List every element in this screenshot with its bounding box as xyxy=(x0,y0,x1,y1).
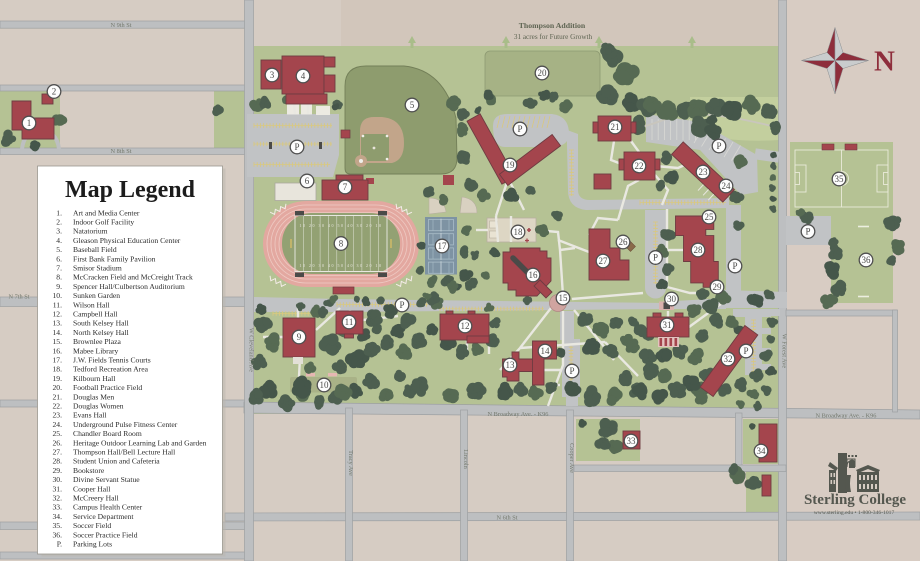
svg-text:12: 12 xyxy=(461,321,470,331)
svg-text:Baseball Field: Baseball Field xyxy=(73,245,117,254)
svg-text:Kilbourn Hall: Kilbourn Hall xyxy=(73,374,115,383)
svg-text:20.: 20. xyxy=(53,383,63,392)
svg-text:McCreery Hall: McCreery Hall xyxy=(73,494,119,503)
svg-text:10.: 10. xyxy=(53,291,63,300)
svg-text:34: 34 xyxy=(757,446,767,456)
svg-text:22: 22 xyxy=(635,161,644,171)
svg-text:Campus Health Center: Campus Health Center xyxy=(73,503,143,512)
svg-text:24: 24 xyxy=(722,181,732,191)
svg-text:Cooper Ave: Cooper Ave xyxy=(568,443,575,473)
svg-text:8: 8 xyxy=(339,239,344,249)
svg-text:10 20 30 40 50 40 30 20 10: 10 20 30 40 50 40 30 20 10 xyxy=(300,223,383,228)
svg-text:P: P xyxy=(399,300,404,310)
svg-text:N 6th St: N 6th St xyxy=(497,515,518,522)
svg-text:27: 27 xyxy=(599,256,609,266)
svg-text:Underground Pulse Fitness Cent: Underground Pulse Fitness Center xyxy=(73,420,178,429)
svg-text:P: P xyxy=(743,346,748,356)
svg-text:31 acres for Future Growth: 31 acres for Future Growth xyxy=(514,33,593,41)
svg-text:Art and Media Center: Art and Media Center xyxy=(73,208,140,217)
svg-text:34.: 34. xyxy=(53,512,63,521)
svg-text:9.: 9. xyxy=(56,282,62,291)
svg-text:www.sterling.edu • 1-800-346: www.sterling.edu • 1-800-346-1017 xyxy=(814,510,895,516)
svg-text:N Broadway Ave. - K96: N Broadway Ave. - K96 xyxy=(488,411,549,418)
svg-text:28: 28 xyxy=(694,245,704,255)
svg-text:North Kelsey Hall: North Kelsey Hall xyxy=(73,328,129,337)
svg-text:10 20 30 40 50 40 30 20 10: 10 20 30 40 50 40 30 20 10 xyxy=(300,263,383,268)
svg-text:30: 30 xyxy=(667,294,677,304)
svg-text:Sunken Garden: Sunken Garden xyxy=(73,291,120,300)
svg-text:33.: 33. xyxy=(53,503,63,512)
svg-text:Bookstore: Bookstore xyxy=(73,466,105,475)
svg-text:P: P xyxy=(805,227,810,237)
svg-text:12.: 12. xyxy=(53,310,63,319)
svg-text:P: P xyxy=(732,261,737,271)
svg-text:14: 14 xyxy=(541,346,551,356)
svg-text:Tedford Recreation Area: Tedford Recreation Area xyxy=(73,365,149,374)
svg-text:1.: 1. xyxy=(56,208,62,217)
svg-text:17.: 17. xyxy=(53,356,63,365)
svg-text:8.: 8. xyxy=(56,273,62,282)
svg-text:26.: 26. xyxy=(53,438,63,447)
svg-text:13.: 13. xyxy=(53,319,63,328)
svg-text:15: 15 xyxy=(559,293,569,303)
svg-text:Parking Lots: Parking Lots xyxy=(73,540,112,549)
svg-text:W Forest Ave: W Forest Ave xyxy=(781,334,788,369)
svg-text:Douglas Men: Douglas Men xyxy=(73,392,114,401)
svg-text:2.: 2. xyxy=(56,218,62,227)
svg-text:19.: 19. xyxy=(53,374,63,383)
svg-text:Soccer Practice Field: Soccer Practice Field xyxy=(73,530,138,539)
svg-text:P: P xyxy=(294,142,299,152)
svg-text:22.: 22. xyxy=(53,402,63,411)
svg-text:Campbell Hall: Campbell Hall xyxy=(73,310,118,319)
svg-text:11.: 11. xyxy=(53,300,62,309)
svg-text:3: 3 xyxy=(270,70,275,80)
svg-text:Gleason Physical Education Cen: Gleason Physical Education Center xyxy=(73,236,181,245)
svg-text:15.: 15. xyxy=(53,337,63,346)
svg-text:18: 18 xyxy=(514,227,524,237)
svg-text:10: 10 xyxy=(320,380,330,390)
svg-text:J.W. Fields Tennis Courts: J.W. Fields Tennis Courts xyxy=(73,356,151,365)
svg-text:14.: 14. xyxy=(53,328,63,337)
svg-text:7.: 7. xyxy=(56,264,62,273)
svg-text:Divine Servant Statue: Divine Servant Statue xyxy=(73,475,140,484)
svg-text:P: P xyxy=(517,124,522,134)
svg-text:N Broadway Ave. - K96: N Broadway Ave. - K96 xyxy=(816,413,877,420)
svg-text:11: 11 xyxy=(345,317,354,327)
svg-text:Cooper Hall: Cooper Hall xyxy=(73,484,110,493)
svg-text:Lincoln: Lincoln xyxy=(462,449,469,469)
svg-text:Smisor Stadium: Smisor Stadium xyxy=(73,264,122,273)
svg-text:N 9th St: N 9th St xyxy=(111,22,132,29)
svg-text:Student Union and Cafeteria: Student Union and Cafeteria xyxy=(73,457,160,466)
svg-text:4.: 4. xyxy=(56,236,62,245)
svg-text:Soccer Field: Soccer Field xyxy=(73,521,111,530)
svg-text:Sterling College: Sterling College xyxy=(804,492,906,508)
svg-text:P: P xyxy=(716,141,721,151)
svg-text:2: 2 xyxy=(52,87,57,97)
svg-text:35.: 35. xyxy=(53,521,63,530)
svg-text:1: 1 xyxy=(27,118,32,128)
svg-text:31: 31 xyxy=(663,320,672,330)
svg-text:13: 13 xyxy=(506,360,516,370)
svg-text:23: 23 xyxy=(699,167,709,177)
svg-text:Spencer Hall/Culbertson Audito: Spencer Hall/Culbertson Auditorium xyxy=(73,282,185,291)
svg-text:6.: 6. xyxy=(56,254,62,263)
svg-text:Tracy Ave: Tracy Ave xyxy=(347,450,354,476)
svg-text:P.: P. xyxy=(57,540,62,549)
svg-text:Chandler Board Room: Chandler Board Room xyxy=(73,429,142,438)
svg-text:32: 32 xyxy=(724,354,733,364)
svg-text:Evans Hall: Evans Hall xyxy=(73,411,107,420)
svg-text:19: 19 xyxy=(506,160,516,170)
svg-text:South Kelsey Hall: South Kelsey Hall xyxy=(73,319,129,328)
svg-text:36.: 36. xyxy=(53,530,63,539)
svg-text:17: 17 xyxy=(438,241,448,251)
svg-text:29: 29 xyxy=(713,282,723,292)
svg-text:36: 36 xyxy=(862,255,872,265)
svg-text:25: 25 xyxy=(705,212,715,222)
svg-text:25.: 25. xyxy=(53,429,63,438)
svg-text:29.: 29. xyxy=(53,466,63,475)
svg-text:23.: 23. xyxy=(53,411,63,420)
svg-text:26: 26 xyxy=(619,237,629,247)
svg-text:4: 4 xyxy=(301,71,306,81)
svg-text:N 8th St: N 8th St xyxy=(111,148,132,155)
svg-text:Douglas Women: Douglas Women xyxy=(73,402,124,411)
svg-text:Map Legend: Map Legend xyxy=(65,177,196,203)
svg-text:Thompson Hall/Bell Lecture Hal: Thompson Hall/Bell Lecture Hall xyxy=(73,448,175,457)
svg-text:31.: 31. xyxy=(53,484,63,493)
svg-text:18.: 18. xyxy=(53,365,63,374)
svg-text:3.: 3. xyxy=(56,227,62,236)
svg-text:21: 21 xyxy=(611,122,620,132)
svg-text:7: 7 xyxy=(343,182,348,192)
svg-text:W Cleveland Ave: W Cleveland Ave xyxy=(248,328,255,372)
svg-text:9: 9 xyxy=(297,332,302,342)
svg-text:Mabee Library: Mabee Library xyxy=(73,346,119,355)
svg-text:McCracken Field and McCreight: McCracken Field and McCreight Track xyxy=(73,273,193,282)
svg-text:6: 6 xyxy=(305,176,310,186)
svg-text:N 7th St: N 7th St xyxy=(9,294,30,301)
svg-text:21.: 21. xyxy=(53,392,63,401)
svg-text:27.: 27. xyxy=(53,448,63,457)
svg-text:Indoor Golf Facility: Indoor Golf Facility xyxy=(73,218,134,227)
svg-text:P: P xyxy=(569,366,574,376)
svg-text:33: 33 xyxy=(627,436,637,446)
svg-text:Football Practice Field: Football Practice Field xyxy=(73,383,142,392)
svg-text:Thompson Addition: Thompson Addition xyxy=(519,21,586,30)
svg-text:30.: 30. xyxy=(53,475,63,484)
svg-text:Heritage Outdoor Learning Lab: Heritage Outdoor Learning Lab and Garden xyxy=(73,438,207,447)
svg-text:5.: 5. xyxy=(56,245,62,254)
svg-text:20: 20 xyxy=(538,68,548,78)
svg-text:24.: 24. xyxy=(53,420,63,429)
svg-text:16.: 16. xyxy=(53,346,63,355)
svg-text:35: 35 xyxy=(835,174,845,184)
svg-text:Wilson Hall: Wilson Hall xyxy=(73,300,110,309)
svg-text:5: 5 xyxy=(410,100,415,110)
svg-text:32.: 32. xyxy=(53,494,63,503)
svg-text:P: P xyxy=(653,253,658,263)
svg-text:16: 16 xyxy=(529,270,539,280)
svg-text:Brownlee Plaza: Brownlee Plaza xyxy=(73,337,121,346)
svg-text:First Bank Family Pavilion: First Bank Family Pavilion xyxy=(73,254,156,263)
svg-text:Natatorium: Natatorium xyxy=(73,227,108,236)
svg-text:28.: 28. xyxy=(53,457,63,466)
svg-text:Service Department: Service Department xyxy=(73,512,134,521)
svg-text:N: N xyxy=(874,46,895,78)
